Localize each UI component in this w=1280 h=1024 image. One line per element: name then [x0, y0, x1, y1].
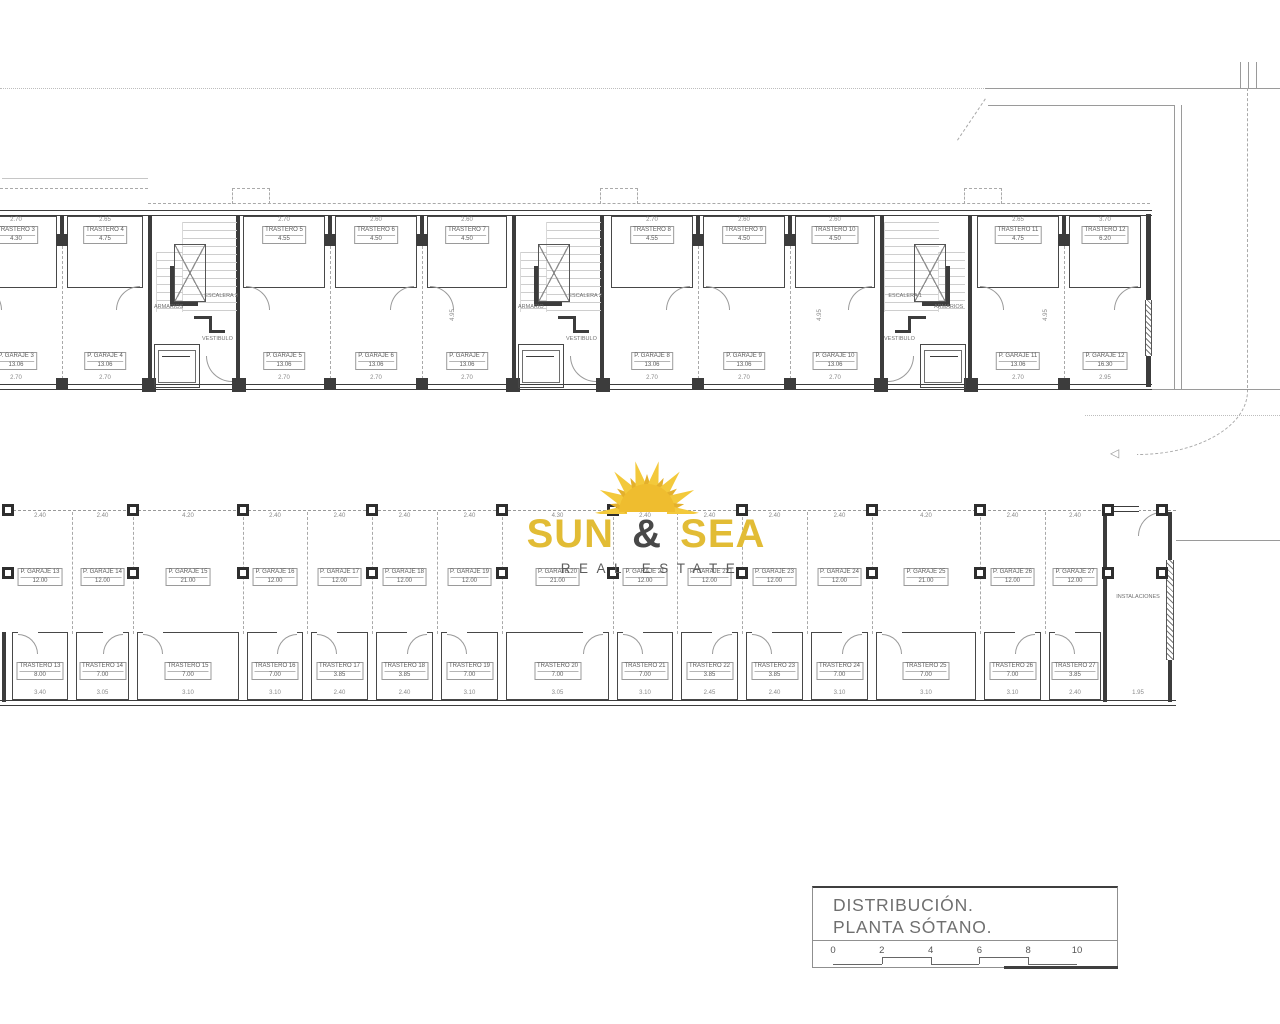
scale-tick-label: 4 [928, 945, 933, 956]
elevator-pit-inner [158, 350, 196, 383]
dimension-label: 2.95 [1099, 375, 1111, 381]
door-arc [1114, 286, 1138, 310]
column [2, 504, 14, 516]
stair-core-wall [148, 216, 152, 390]
column [324, 378, 336, 390]
dimension-label: 4.20 [920, 513, 932, 519]
trastero-label: TRASTERO 233.85 [751, 662, 798, 680]
stair-core-wall [512, 216, 516, 390]
dimension-label: 3.10 [1007, 690, 1019, 696]
column [366, 567, 378, 579]
scale-bar-connector [882, 957, 883, 964]
garaje-label: P. GARAJE 1312.00 [18, 568, 63, 586]
scale-tick-label: 10 [1072, 945, 1083, 956]
stair-wall [170, 266, 174, 306]
column [596, 378, 610, 392]
dimension-label: 2.70 [646, 217, 658, 223]
dimension-label: 2.40 [334, 690, 346, 696]
dimension-label: 2.70 [278, 375, 290, 381]
brand-word-sea: SEA [680, 512, 765, 556]
column [366, 504, 378, 516]
garaje-label: P. GARAJE 2712.00 [1053, 568, 1098, 586]
trastero-label: TRASTERO 138.00 [16, 662, 63, 680]
brand-subtitle: REAL ESTATE [561, 561, 744, 576]
garaje-label: P. GARAJE 1412.00 [80, 568, 125, 586]
floor-plan-canvas: ◁ INSTALACIONES 1.95 2.70TRASTERO 34.30P… [0, 0, 1280, 1024]
trastero-label: TRASTERO 167.00 [251, 662, 298, 680]
column [692, 378, 704, 390]
garaje-label: P. GARAJE 1521.00 [166, 568, 211, 586]
garage-bay-divider [330, 246, 331, 384]
dimension-label: 4.20 [182, 513, 194, 519]
dimension-label: 3.10 [269, 690, 281, 696]
dimension-label: 2.65 [99, 217, 111, 223]
garage-bay-divider [62, 246, 63, 384]
trastero-label: TRASTERO 157.00 [164, 662, 211, 680]
column [1156, 567, 1168, 579]
title-block: DISTRIBUCIÓN. PLANTA SÓTANO. 0246810 [812, 886, 1118, 968]
door-arc [390, 286, 414, 310]
elevator-pit-inner [924, 350, 962, 383]
scale-tick-label: 6 [977, 945, 982, 956]
column [692, 234, 704, 246]
scale-bar-connector [979, 957, 980, 964]
trastero-label: TRASTERO 54.55 [262, 226, 306, 244]
trastero-label: TRASTERO 173.85 [316, 662, 363, 680]
trastero-label: TRASTERO 147.00 [79, 662, 126, 680]
drawing-title-line2: PLANTA SÓTANO. [833, 916, 992, 938]
garaje-label: P. GARAJE 2312.00 [752, 568, 797, 586]
dimension-label: 2.60 [370, 217, 382, 223]
trastero-label: TRASTERO 183.85 [381, 662, 428, 680]
column [127, 504, 139, 516]
garaje-label: P. GARAJE 2612.00 [990, 568, 1035, 586]
garaje-label: P. GARAJE 1612.00 [253, 568, 298, 586]
parking-bay-divider [72, 512, 73, 634]
column [56, 378, 68, 390]
vestibule-wall [895, 330, 911, 333]
column [1102, 567, 1114, 579]
column [496, 567, 508, 579]
door-arc [430, 286, 454, 310]
dimension-label: 2.40 [399, 513, 411, 519]
dimension-label: 2.70 [99, 375, 111, 381]
closet-label: ARMARIOS [154, 304, 186, 312]
garaje-label: P. GARAJE 2521.00 [904, 568, 949, 586]
garaje-label: P. GARAJE 913.06 [723, 352, 765, 370]
door-arc [980, 286, 1004, 310]
door-arc [206, 356, 232, 382]
dimension-label: 2.60 [738, 217, 750, 223]
dimension-label: 2.40 [769, 690, 781, 696]
scale-bar-segment [1028, 964, 1077, 965]
vestibule-wall [209, 330, 225, 333]
dimension-label: 3.10 [464, 690, 476, 696]
dimension-label: 2.40 [97, 513, 109, 519]
door-arc [570, 356, 596, 382]
dimension-label: 4.95 [450, 309, 456, 321]
elevator-arrow [526, 356, 554, 357]
scale-bar-segment [833, 964, 882, 965]
garaje-label: P. GARAJE 613.06 [355, 352, 397, 370]
column [974, 504, 986, 516]
dimension-label: 3.10 [920, 690, 932, 696]
dimension-label: 4.95 [817, 309, 823, 321]
scale-bar-connector [1028, 957, 1029, 964]
column [784, 378, 796, 390]
dimension-label: 2.40 [334, 513, 346, 519]
dimension-label: 3.10 [834, 690, 846, 696]
trastero-label: TRASTERO 267.00 [989, 662, 1036, 680]
column [232, 378, 246, 392]
column [1058, 378, 1070, 390]
hall-label: VESTIBULO [566, 336, 600, 344]
brand-word-sun: SUN [527, 512, 614, 556]
trastero-label: TRASTERO 44.75 [83, 226, 127, 244]
garaje-label: P. GARAJE 1812.00 [382, 568, 427, 586]
dimension-label: 2.40 [1069, 690, 1081, 696]
scale-tick-label: 2 [879, 945, 884, 956]
column [974, 567, 986, 579]
garaje-label: P. GARAJE 513.06 [263, 352, 305, 370]
trastero-label: TRASTERO 34.30 [0, 226, 38, 244]
hall-label: VESTIBULO [884, 336, 918, 344]
trastero-label: TRASTERO 104.50 [811, 226, 858, 244]
column [1156, 504, 1168, 516]
dimension-label: 3.05 [552, 690, 564, 696]
column [2, 567, 14, 579]
trastero-label: TRASTERO 197.00 [446, 662, 493, 680]
garage-bay-divider [1064, 246, 1065, 384]
scale-bar-segment [979, 957, 1028, 958]
column [496, 504, 508, 516]
dimension-label: 2.60 [829, 217, 841, 223]
dimension-label: 2.40 [1007, 513, 1019, 519]
garaje-label: P. GARAJE 1712.00 [317, 568, 362, 586]
column [784, 234, 796, 246]
trastero-label: TRASTERO 114.75 [995, 226, 1042, 244]
door-arc [116, 286, 140, 310]
trastero-label: TRASTERO 247.00 [816, 662, 863, 680]
garaje-label: P. GARAJE 1013.06 [813, 352, 858, 370]
stair-label: ESCALERA 3 [198, 293, 238, 301]
scale-bar-segment [931, 964, 980, 965]
parking-bay-divider [1045, 512, 1046, 634]
column [1058, 234, 1070, 246]
closet-label: ARMARIOS [934, 304, 966, 312]
door-arc [246, 286, 270, 310]
column [56, 234, 68, 246]
garaje-label: P. GARAJE 813.06 [631, 352, 673, 370]
dimension-label: 2.40 [834, 513, 846, 519]
garaje-label: P. GARAJE 1216.30 [1083, 352, 1128, 370]
garage-bay-divider [422, 246, 423, 384]
dimension-label: 2.70 [1012, 375, 1024, 381]
elevator-arrow [162, 356, 190, 357]
sun-icon [577, 450, 717, 514]
trastero-label: TRASTERO 94.50 [722, 226, 766, 244]
dimension-label: 2.70 [738, 375, 750, 381]
trastero-label: TRASTERO 64.50 [354, 226, 398, 244]
dimension-label: 3.10 [182, 690, 194, 696]
dimension-label: 2.45 [704, 690, 716, 696]
column [237, 567, 249, 579]
garaje-label: P. GARAJE 1113.06 [996, 352, 1040, 370]
dimension-label: 2.70 [370, 375, 382, 381]
hall-label: VESTIBULO [202, 336, 236, 344]
trastero-label: TRASTERO 223.85 [686, 662, 733, 680]
dimension-label: 2.40 [34, 513, 46, 519]
dimension-label: 2.70 [10, 375, 22, 381]
garaje-label: P. GARAJE 2412.00 [817, 568, 862, 586]
column [237, 504, 249, 516]
dimension-label: 2.40 [399, 690, 411, 696]
dimension-label: 2.70 [278, 217, 290, 223]
column [127, 567, 139, 579]
dimension-label: 2.40 [269, 513, 281, 519]
dimension-label: 2.70 [829, 375, 841, 381]
dimension-label: 2.65 [1012, 217, 1024, 223]
title-block-shadow [1004, 966, 1118, 969]
garaje-label: P. GARAJE 1912.00 [447, 568, 492, 586]
dimension-label: 2.40 [1069, 513, 1081, 519]
trastero-label: TRASTERO 217.00 [621, 662, 668, 680]
door-arc [0, 286, 2, 310]
elevator-pit-inner [522, 350, 560, 383]
title-text-area: DISTRIBUCIÓN. PLANTA SÓTANO. [833, 894, 992, 938]
dimension-label: 2.60 [461, 217, 473, 223]
brand-ampersand: & [632, 512, 662, 556]
stair-label: ESCALERA 2 [562, 293, 602, 301]
garage-bay-divider [790, 246, 791, 384]
stair-label: ESCALERA 1 [882, 293, 922, 301]
drawing-title-line1: DISTRIBUCIÓN. [833, 894, 992, 916]
dimension-label: 3.40 [34, 690, 46, 696]
door-arc [888, 356, 914, 382]
parking-bay-divider [307, 512, 308, 634]
column [416, 234, 428, 246]
column [416, 378, 428, 390]
column [874, 378, 888, 392]
parking-bay-divider [807, 512, 808, 634]
scale-tick-label: 0 [830, 945, 835, 956]
dimension-label: 3.10 [639, 690, 651, 696]
garaje-label: P. GARAJE 413.06 [84, 352, 126, 370]
dimension-label: 4.95 [1043, 309, 1049, 321]
vestibule-wall [573, 330, 589, 333]
trastero-label: TRASTERO 74.50 [445, 226, 489, 244]
trastero-label: TRASTERO 126.20 [1081, 226, 1128, 244]
column [324, 234, 336, 246]
stair-wall [946, 266, 950, 306]
trastero-label: TRASTERO 257.00 [902, 662, 949, 680]
stair-wall [534, 266, 538, 306]
door-arc [706, 286, 730, 310]
parking-bay-divider [437, 512, 438, 634]
stair-core-wall [968, 216, 972, 390]
door-arc [666, 286, 690, 310]
trastero-label: TRASTERO 84.55 [630, 226, 674, 244]
column [1102, 504, 1114, 516]
garage-bay-divider [698, 246, 699, 384]
scale-bar-segment [882, 957, 931, 958]
garaje-label: P. GARAJE 313.06 [0, 352, 37, 370]
column [866, 504, 878, 516]
dimension-label: 3.05 [97, 690, 109, 696]
dimension-label: 3.70 [1099, 217, 1111, 223]
column [866, 567, 878, 579]
brand-wordmark: SUN & SEA [527, 512, 766, 557]
dimension-label: 2.70 [646, 375, 658, 381]
garaje-label: P. GARAJE 713.06 [446, 352, 488, 370]
closet-label: ARMARIO [518, 304, 550, 312]
trastero-label: TRASTERO 207.00 [534, 662, 581, 680]
dimension-label: 2.70 [461, 375, 473, 381]
door-arc [848, 286, 872, 310]
elevator-arrow [930, 356, 958, 357]
trastero-label: TRASTERO 273.85 [1051, 662, 1098, 680]
dimension-label: 2.40 [769, 513, 781, 519]
dimension-label: 2.70 [10, 217, 22, 223]
scale-tick-label: 8 [1026, 945, 1031, 956]
dimension-label: 2.40 [464, 513, 476, 519]
column [964, 378, 978, 392]
scale-bar-connector [931, 957, 932, 964]
